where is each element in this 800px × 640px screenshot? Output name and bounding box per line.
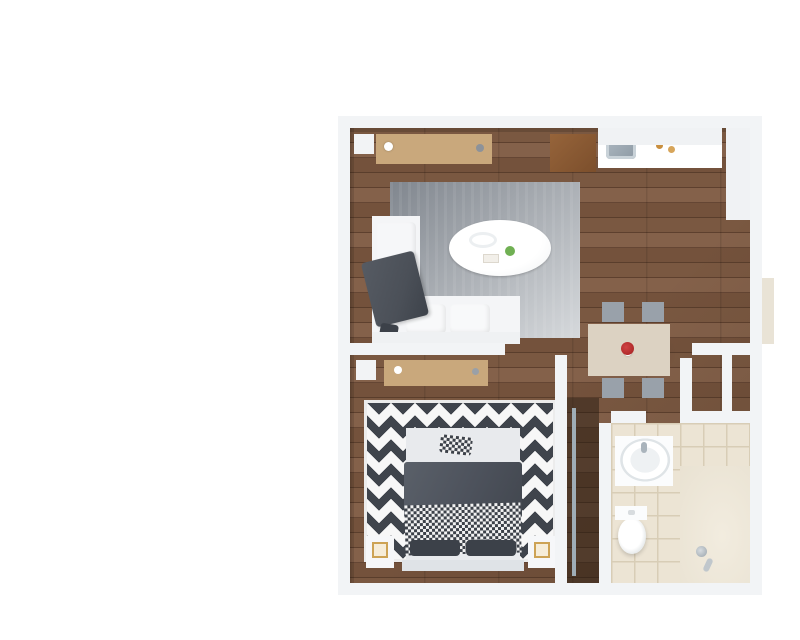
storage-cabinet [550,134,596,172]
decor-orb [394,366,402,374]
bed-pillow [410,540,460,556]
wall-cap [750,116,762,595]
wall-cap [338,116,762,128]
kitchen-canister [668,146,675,153]
toilet-tank [615,506,647,520]
entry-closet-cap [680,358,692,423]
shower-floor [680,466,750,583]
decor-orb [384,142,393,151]
wall-cap [338,583,762,595]
tall-cabinet [726,128,750,220]
decor-plant [505,246,515,256]
bathroom-wall-cap [611,411,646,423]
shower-head [696,546,707,557]
bed-headboard [402,560,524,571]
red-flower-centerpiece [621,342,634,355]
coffee-table [449,220,551,276]
accent-pillow [439,434,473,456]
vanity-sink [615,436,673,486]
bathroom-wall-cap [599,423,611,583]
dining-chair [642,302,664,322]
decor-vase [472,368,479,375]
bathroom-faucet [641,442,647,453]
bed-pillow [466,540,516,556]
toilet-bowl [618,518,646,554]
tv-console-bedroom [384,360,488,386]
wall-cap [338,116,350,595]
closet-wall-cap [555,355,567,583]
decor-vase [476,144,484,152]
decor-book [483,254,499,263]
dining-chair [602,378,624,398]
bedroom-partition-cap [350,343,505,355]
closet-rail [572,408,576,576]
entry-closet-cap [722,355,732,423]
bathroom-wall-cap [691,411,750,423]
dining-table [588,324,670,376]
bed [406,428,520,560]
tv-console-living [376,134,492,164]
flush-button [628,510,635,515]
seat-cushion [450,304,490,334]
decor-bowl [469,232,497,248]
entry-closet-cap [692,343,750,355]
dining-chair [642,378,664,398]
floorplan-scene [0,0,800,640]
dining-chair [602,302,624,322]
